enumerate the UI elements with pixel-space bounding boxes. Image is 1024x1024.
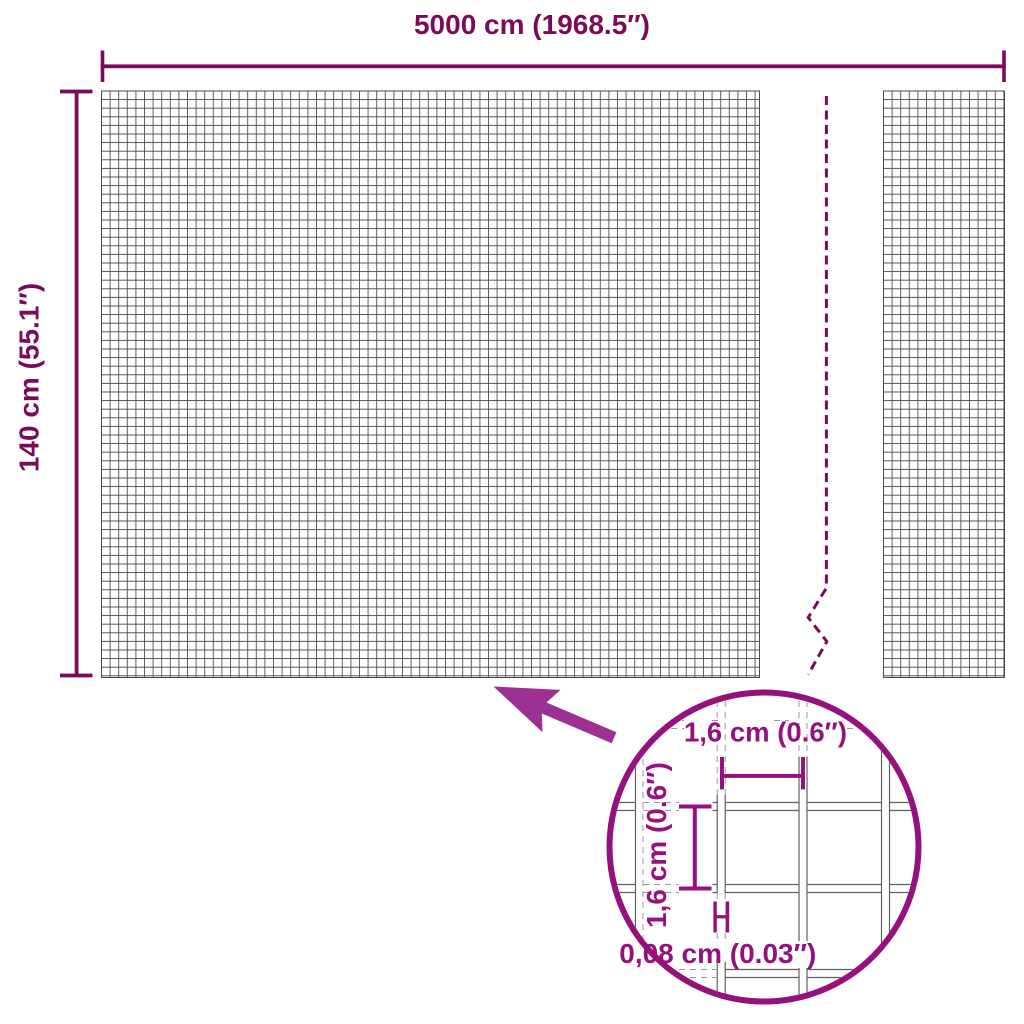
svg-text:140 cm (55.1″): 140 cm (55.1″): [14, 283, 45, 472]
svg-text:5000 cm (1968.5″): 5000 cm (1968.5″): [414, 9, 650, 40]
svg-text:1,6 cm (0.6″): 1,6 cm (0.6″): [641, 762, 672, 928]
svg-text:0,08 cm (0.03″): 0,08 cm (0.03″): [619, 938, 816, 969]
svg-text:1,6 cm (0.6″): 1,6 cm (0.6″): [684, 717, 847, 748]
